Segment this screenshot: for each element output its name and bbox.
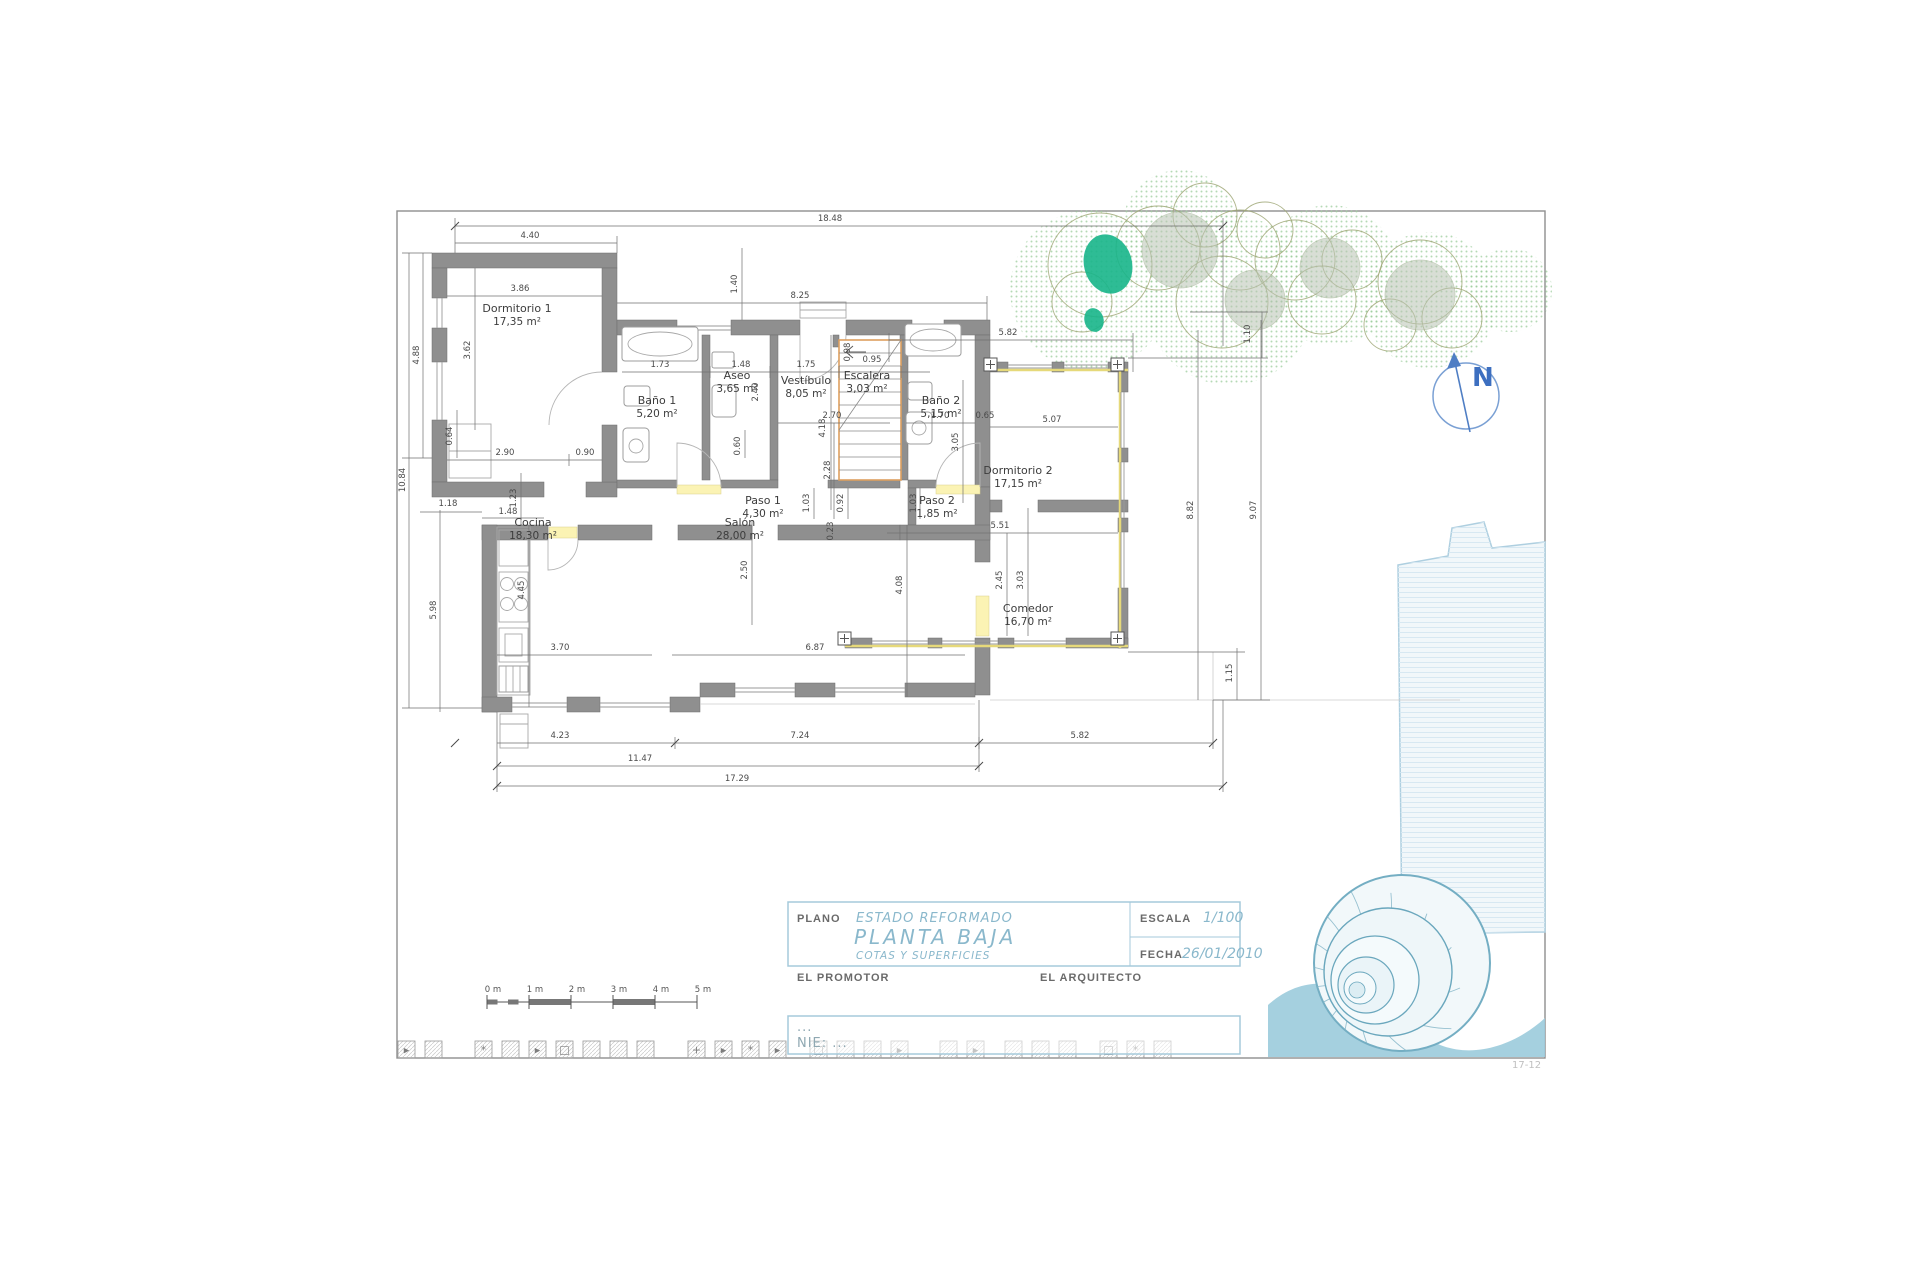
bathtub-bano1: [622, 327, 698, 361]
room-name: Aseo: [724, 369, 751, 382]
room-area: 28,00 m²: [716, 530, 764, 542]
dimension-label: 0.95: [863, 355, 882, 365]
dimension-label: 7.24: [791, 731, 810, 741]
room-area: 17,15 m²: [994, 478, 1042, 490]
tr-icon: ▸: [721, 1044, 727, 1057]
dimension-label: 1.15: [1225, 664, 1235, 683]
nie-line1: ...: [797, 1020, 812, 1035]
scale-bar-label: 2 m: [569, 985, 585, 995]
plano-label: PLANO: [797, 913, 841, 925]
sq-icon: □: [559, 1044, 569, 1057]
scale-bar-label: 5 m: [695, 985, 711, 995]
dimension-label: 1.10: [1243, 325, 1253, 344]
room-name: Baño 1: [638, 394, 676, 407]
room-area: 3,03 m²: [846, 383, 887, 395]
dimension-label: 0.90: [576, 448, 595, 458]
toolbar-icon[interactable]: [502, 1041, 519, 1058]
room-name: Comedor: [1003, 602, 1054, 615]
dimension-label: 17.29: [725, 774, 749, 784]
room-labels: Dormitorio 117,35 m²Baño 15,20 m²Aseo3,6…: [482, 302, 1053, 628]
room-area: 8,05 m²: [785, 388, 826, 400]
dimension-label: 1.18: [439, 499, 458, 509]
toolbar-icon[interactable]: [610, 1041, 627, 1058]
tr-icon: ▸: [404, 1044, 410, 1057]
dimension-label: 1.40: [730, 275, 740, 294]
graphic-scale-bar: 0 m1 m2 m3 m4 m5 m: [485, 985, 711, 1009]
dimension-label: 18.48: [818, 214, 842, 224]
room-name: Dormitorio 2: [983, 464, 1052, 477]
toolbar-icon[interactable]: [637, 1041, 654, 1058]
dimension-label: 2.45: [995, 571, 1005, 590]
room-area: 17,35 m²: [493, 316, 541, 328]
dimension-label: 4.45: [517, 581, 527, 600]
dimension-label: 1.73: [651, 360, 670, 370]
room-area: 5,20 m²: [636, 408, 677, 420]
dimension-label: 5.51: [991, 521, 1010, 531]
dimension-label: 3.70: [551, 643, 570, 653]
dimension-label: 3.62: [463, 341, 473, 360]
dimension-label: 1.23: [509, 489, 519, 508]
dimension-label: 3.86: [511, 284, 530, 294]
neighbour-building-outline: [1398, 522, 1545, 934]
room-name: Paso 1: [745, 494, 781, 507]
scale-bar-label: 4 m: [653, 985, 669, 995]
room-name: Salón: [725, 516, 756, 529]
floor-plan-sheet: 18.484.403.868.255.822.900.901.181.481.7…: [0, 0, 1920, 1280]
dimension-label: 4.08: [895, 576, 905, 595]
kitchen-counter: [497, 527, 530, 748]
room-name: Dormitorio 1: [482, 302, 551, 315]
scale-bar-label: 3 m: [611, 985, 627, 995]
arquitecto-label: EL ARQUITECTO: [1040, 972, 1142, 984]
plano-value-line2: PLANTA BAJA: [854, 925, 1016, 949]
dimension-label: 10.84: [398, 468, 408, 492]
dimension-label: 0.65: [976, 411, 995, 421]
room-area: 3,65 m²: [716, 383, 757, 395]
room-name: Escalera: [844, 369, 891, 382]
dimension-label: 5.07: [1043, 415, 1062, 425]
fecha-label: FECHA: [1140, 949, 1183, 961]
tr-icon: ▸: [775, 1044, 781, 1057]
north-letter: N: [1472, 363, 1494, 393]
dimension-label: 11.47: [628, 754, 652, 764]
plano-value-line3: COTAS Y SUPERFICIES: [856, 950, 990, 962]
sheet-number-note: 17-12: [1512, 1060, 1541, 1071]
dimension-label: 9.07: [1249, 501, 1259, 520]
dimension-label: 4.88: [412, 346, 422, 365]
title-block: PLANO ESTADO REFORMADO PLANTA BAJA COTAS…: [788, 902, 1263, 1054]
as-icon: *: [481, 1044, 487, 1057]
as-icon: *: [748, 1044, 754, 1057]
room-name: Paso 2: [919, 494, 955, 507]
toolbar-icon[interactable]: [583, 1041, 600, 1058]
dimension-label: 0.23: [826, 522, 836, 541]
dimension-label: 2.28: [823, 461, 833, 480]
room-name: Vestíbulo: [781, 374, 832, 387]
dimension-label: 0.64: [445, 427, 455, 446]
dimension-label: 0.92: [836, 494, 846, 513]
dimension-label: 3.05: [951, 433, 961, 452]
room-area: 5,15 m²: [920, 408, 961, 420]
dimension-label: 3.03: [1016, 571, 1026, 590]
room-area: 16,70 m²: [1004, 616, 1052, 628]
dimension-label: 2.50: [740, 561, 750, 580]
dimension-label: 1.03: [802, 494, 812, 513]
garden-trees-illustration: [1010, 170, 1552, 385]
room-name: Cocina: [514, 516, 551, 529]
promotor-label: EL PROMOTOR: [797, 972, 890, 984]
nie-line2: NIE: ...: [797, 1036, 848, 1051]
escala-label: ESCALA: [1140, 913, 1191, 925]
tr-icon: ▸: [535, 1044, 541, 1057]
dimension-label: 4.40: [521, 231, 540, 241]
scale-bar-label: 0 m: [485, 985, 501, 995]
dimension-label: 4.18: [818, 419, 828, 438]
escala-value: 1/100: [1203, 910, 1243, 926]
room-area: 18,30 m²: [509, 530, 557, 542]
entrance-step: [800, 302, 846, 318]
dimension-label: 6.87: [806, 643, 825, 653]
scale-bar-label: 1 m: [527, 985, 543, 995]
fecha-value: 26/01/2010: [1182, 946, 1263, 962]
dimension-label: 8.25: [791, 291, 810, 301]
dimension-label: 0.60: [733, 437, 743, 456]
dimension-label: 5.82: [1071, 731, 1090, 741]
dimension-label: 4.23: [551, 731, 570, 741]
plano-value-line1: ESTADO REFORMADO: [856, 911, 1013, 926]
toolbar-icon[interactable]: [425, 1041, 442, 1058]
nie-box: [788, 1016, 1240, 1054]
wardrobe-dormitorio1: [449, 424, 491, 478]
dimension-label: 2.90: [496, 448, 515, 458]
room-area: 1,85 m²: [916, 508, 957, 520]
cr-icon: +: [692, 1044, 701, 1057]
dimension-label: 0.98: [843, 343, 853, 362]
dimension-label: 5.82: [999, 328, 1018, 338]
dimension-label: 1.75: [797, 360, 816, 370]
room-name: Baño 2: [922, 394, 960, 407]
dimension-label: 8.82: [1186, 501, 1196, 520]
dimension-label: 5.98: [429, 601, 439, 620]
